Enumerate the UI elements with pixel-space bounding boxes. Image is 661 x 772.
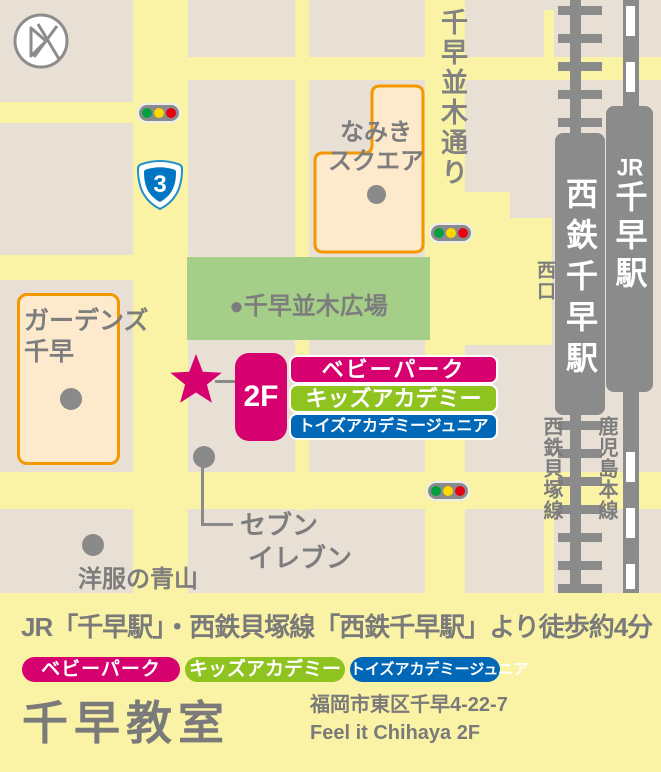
nishitetsu-chihaya-station-label: 西鉄千早駅 <box>557 177 603 382</box>
namiki-square-dot <box>367 185 386 204</box>
rail-tie <box>558 62 602 71</box>
traffic-light-red <box>458 228 468 238</box>
address-line1: 福岡市東区千早4-22-7 <box>310 691 508 719</box>
classroom-name: 千早教室 <box>22 687 230 753</box>
jr-rail-top <box>623 0 639 106</box>
kaizuka-line-label: 西鉄貝塚線 <box>537 416 566 521</box>
floor-2f-badge: 2F <box>235 353 287 441</box>
access-text: JR「千早駅」・西鉄貝塚線「西鉄千早駅」より徒歩約4分 <box>21 607 652 644</box>
address-line2: Feel it Chihaya 2F <box>310 719 508 747</box>
badge-babypark: ベビーパーク <box>22 657 180 682</box>
station-front-plaza <box>425 192 510 345</box>
traffic-light-icon <box>137 103 181 123</box>
rail-tie <box>558 561 602 570</box>
rail-tie <box>558 90 602 99</box>
jr-chihaya-station-label: JR千早駅 <box>607 156 653 294</box>
jr-station-prefix: JR <box>617 156 644 180</box>
kagoshima-line-label: 鹿児島本線 <box>592 416 621 521</box>
badge-toyzacademy: トイズアカデミージュニア <box>350 657 500 682</box>
jr-rail-dashes <box>626 452 635 589</box>
namiki-plaza-label: ●千早並木広場 <box>187 286 430 321</box>
badge-kidsacademy: キッズアカデミー <box>185 657 345 682</box>
rail-tie <box>558 533 602 542</box>
classroom-address: 福岡市東区千早4-22-7 Feel it Chihaya 2F <box>310 691 508 747</box>
info-panel: JR「千早駅」・西鉄貝塚線「西鉄千早駅」より徒歩約4分 ベビーパーク キッズアカ… <box>0 593 661 772</box>
traffic-light-yellow <box>443 486 453 496</box>
aoyama-dot <box>82 534 104 556</box>
callout-brand-toyzacademy: トイズアカデミージュニア <box>289 413 498 440</box>
road-horizontal-west <box>0 102 133 123</box>
traffic-light-red <box>455 486 465 496</box>
rail-tie <box>558 6 602 15</box>
route-number: 3 <box>153 171 166 198</box>
jr-chihaya-station: JR千早駅 <box>606 106 653 392</box>
gardens-chihaya-label: ガーデンズ 千早 <box>24 306 149 368</box>
compass-icon <box>12 12 70 70</box>
jr-rail-dashes <box>626 6 635 101</box>
nishitetsu-chihaya-station: 西鉄千早駅 <box>555 133 605 415</box>
traffic-light-yellow <box>154 108 164 118</box>
callout-brand-babypark: ベビーパーク <box>289 355 498 384</box>
namiki-square-label: なみき スクエア <box>316 118 436 176</box>
rail-tie <box>558 584 602 593</box>
seven-eleven-connector-h <box>201 523 233 526</box>
seven-eleven-label-line1: セブン <box>240 509 352 542</box>
rail-tie <box>558 118 602 127</box>
jr-rail-bottom <box>623 392 639 593</box>
gardens-label-line1: ガーデンズ <box>24 306 149 337</box>
traffic-light-yellow <box>446 228 456 238</box>
rail-tie <box>558 34 602 43</box>
road-station-side-top <box>544 10 554 57</box>
seven-eleven-dot <box>193 446 215 468</box>
access-map: ●千早並木広場 なみき スクエア ガーデンズ 千早 千早並木通り 西鉄千早駅 <box>0 0 661 593</box>
traffic-light-green <box>434 228 444 238</box>
gardens-label-line2: 千早 <box>24 337 149 368</box>
seven-eleven-label: セブン イレブン <box>240 509 352 575</box>
seven-eleven-label-line2: イレブン <box>240 542 352 575</box>
traffic-light-green <box>142 108 152 118</box>
namiki-street-name: 千早並木通り <box>433 8 472 188</box>
callout-brand-kidsacademy: キッズアカデミー <box>289 384 498 413</box>
traffic-light-icon <box>429 223 473 243</box>
west-exit-label: 西口 <box>531 260 558 302</box>
jr-station-name: 千早駅 <box>612 180 648 294</box>
traffic-light-icon <box>426 481 470 501</box>
seven-eleven-connector-v <box>201 466 204 526</box>
road-station-side-bottom <box>544 509 554 593</box>
namiki-square-label-line2: スクエア <box>316 147 436 176</box>
aoyama-label: 洋服の青山 <box>78 559 198 593</box>
gardens-chihaya-dot <box>60 388 82 410</box>
road-vertical-west <box>133 0 188 593</box>
route-3-shield-icon: 3 <box>132 156 188 212</box>
namiki-square-label-line1: なみき <box>316 118 436 147</box>
traffic-light-green <box>431 486 441 496</box>
traffic-light-red <box>166 108 176 118</box>
